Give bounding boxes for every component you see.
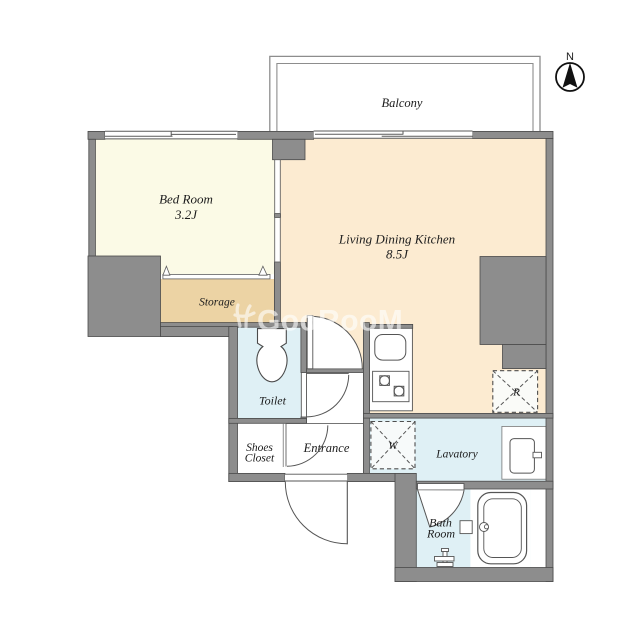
svg-text:Room: Room: [426, 527, 455, 541]
svg-text:W: W: [388, 440, 398, 452]
svg-text:Storage: Storage: [199, 297, 235, 309]
svg-text:Lavatory: Lavatory: [435, 449, 478, 461]
svg-text:Toilet: Toilet: [259, 393, 287, 407]
svg-text:GooRooM: GooRooM: [257, 305, 403, 338]
svg-text:8.5J: 8.5J: [386, 246, 409, 261]
svg-text:R: R: [512, 386, 520, 398]
svg-text:Living Dining Kitchen: Living Dining Kitchen: [338, 231, 455, 246]
svg-text:Closet: Closet: [245, 452, 275, 464]
svg-text:Balcony: Balcony: [382, 96, 423, 110]
svg-text:3.2J: 3.2J: [174, 207, 198, 222]
svg-text:Bed Room: Bed Room: [159, 192, 213, 207]
svg-text:Entrance: Entrance: [303, 441, 350, 455]
svg-text:N: N: [566, 51, 574, 63]
